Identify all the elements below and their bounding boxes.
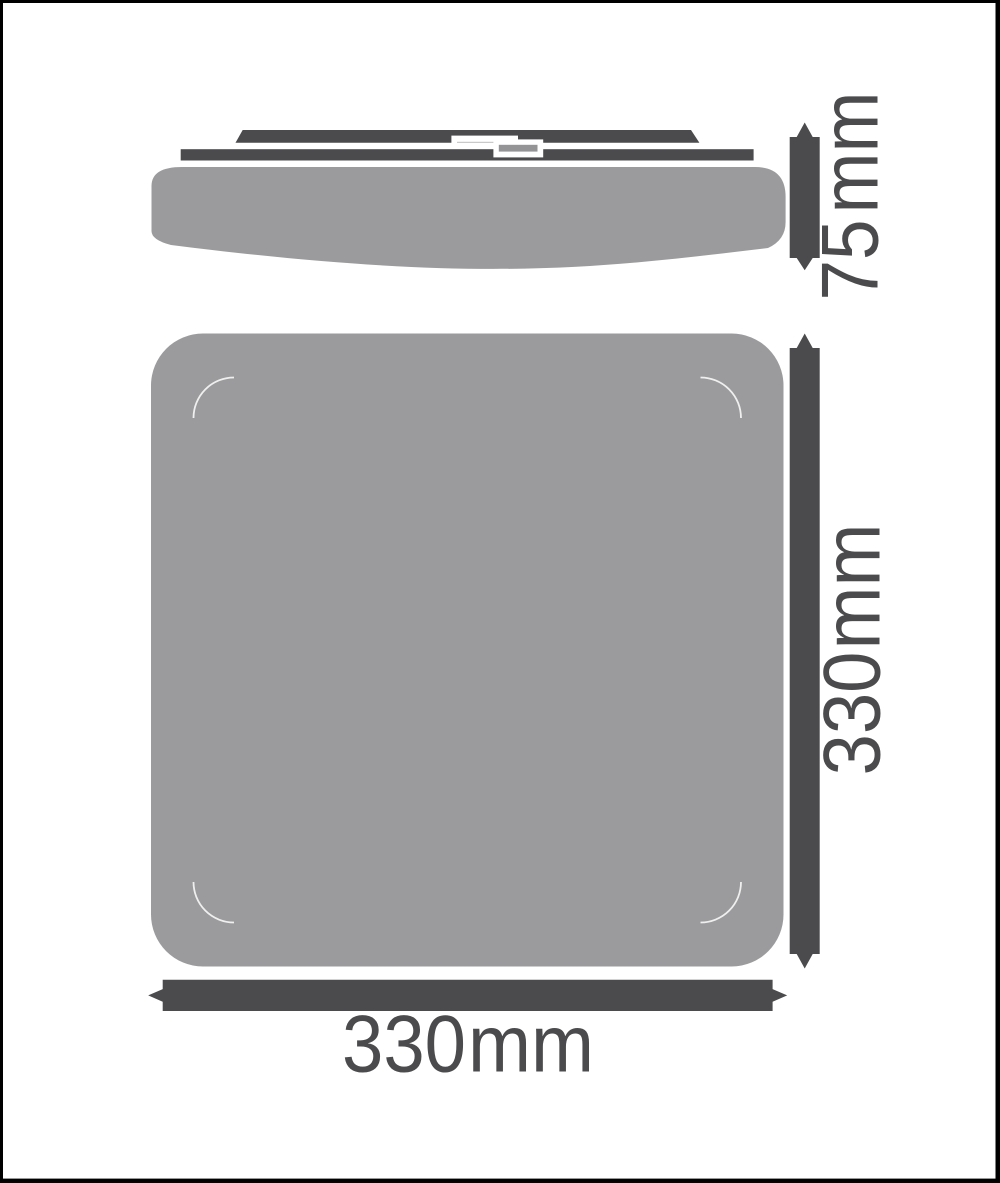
svg-text:mm: mm — [808, 524, 898, 650]
svg-text:mm: mm — [468, 1000, 594, 1090]
svg-text:75: 75 — [806, 220, 896, 301]
svg-text:330: 330 — [808, 652, 898, 776]
svg-text:mm: mm — [806, 92, 896, 214]
svg-text:330: 330 — [342, 1000, 466, 1090]
